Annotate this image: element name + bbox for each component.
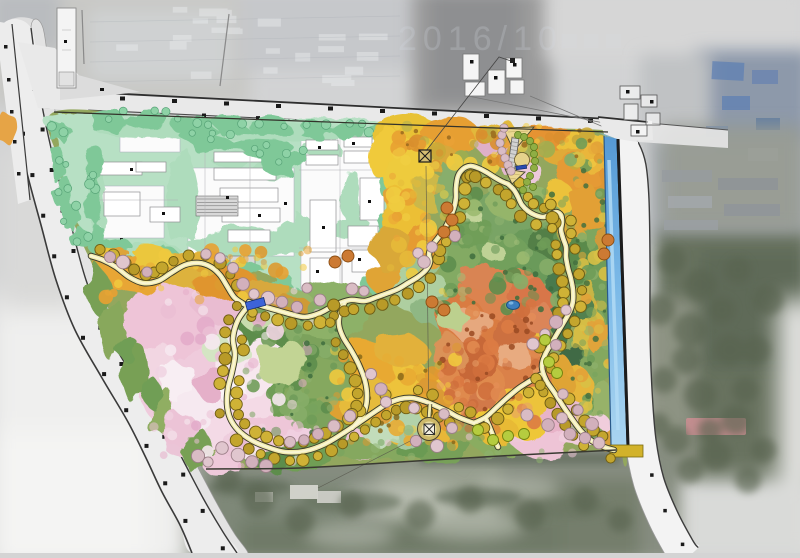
svg-text:2016/10: 2016/10 <box>398 20 563 58</box>
svg-text:■■■: ■■■ <box>560 24 626 57</box>
